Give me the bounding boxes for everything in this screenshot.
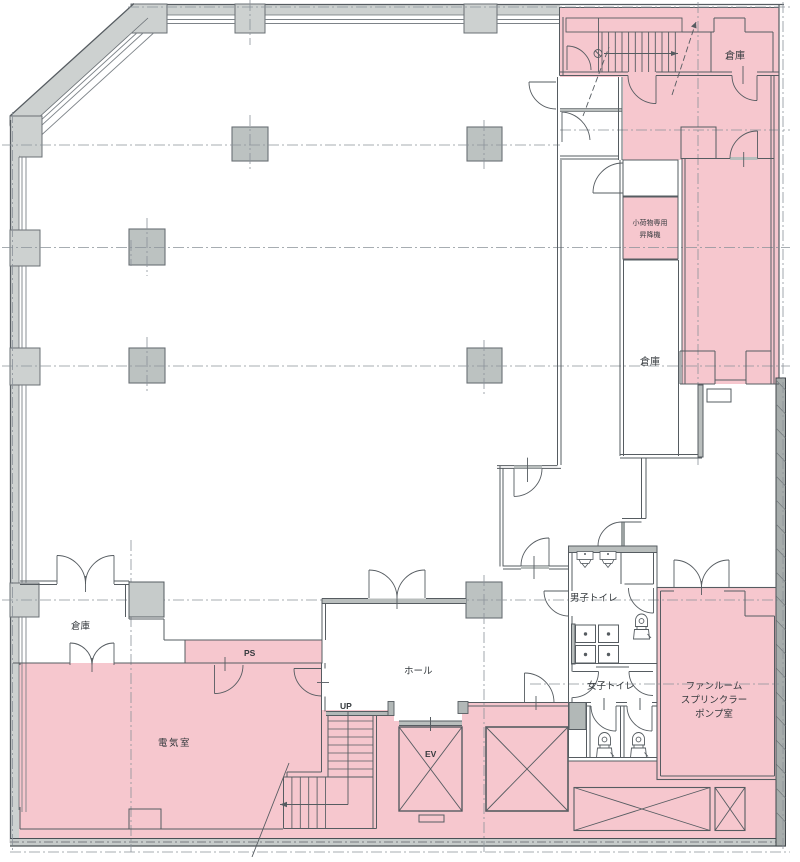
svg-text:スプリンクラー: スプリンクラー <box>681 695 748 706</box>
svg-text:電気室: 電気室 <box>158 737 191 749</box>
svg-text:小荷物専用: 小荷物専用 <box>633 218 668 227</box>
svg-text:UP: UP <box>340 701 352 711</box>
svg-text:ポンプ室: ポンプ室 <box>695 708 733 720</box>
svg-text:EV: EV <box>425 749 437 759</box>
svg-text:倉庫: 倉庫 <box>71 620 91 632</box>
svg-text:ホール: ホール <box>404 666 433 677</box>
svg-text:昇降機: 昇降機 <box>640 230 661 239</box>
svg-text:倉庫: 倉庫 <box>725 49 745 62</box>
svg-text:PS: PS <box>244 648 256 658</box>
svg-text:男子トイレ: 男子トイレ <box>570 593 618 604</box>
svg-text:女子トイレ: 女子トイレ <box>587 680 635 692</box>
svg-text:倉庫: 倉庫 <box>640 355 660 368</box>
svg-text:ファンルーム: ファンルーム <box>686 681 743 692</box>
